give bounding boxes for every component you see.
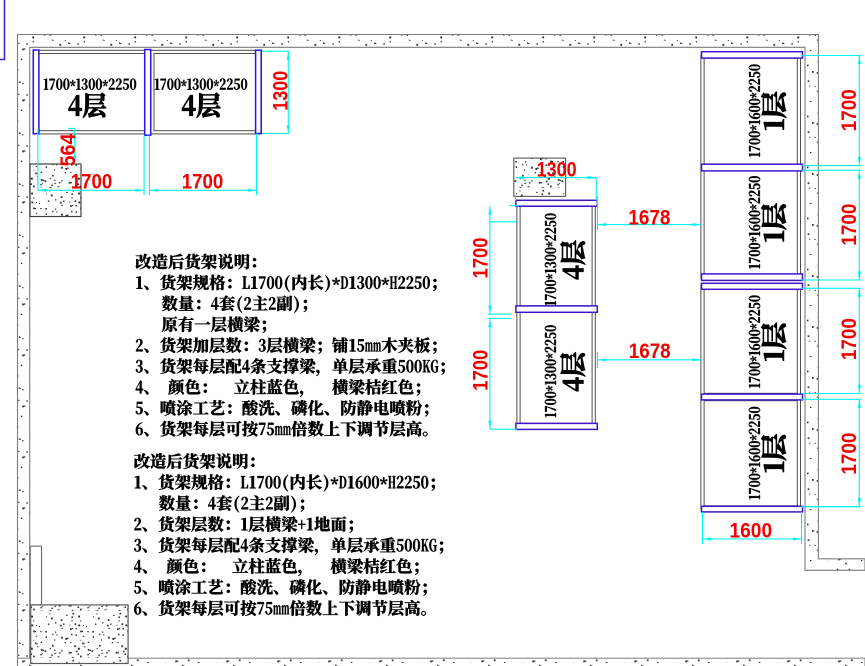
svg-text:1700: 1700: [838, 433, 861, 475]
svg-text:1700: 1700: [182, 171, 224, 194]
svg-text:564: 564: [57, 133, 80, 166]
svg-text:1700: 1700: [838, 89, 861, 131]
svg-text:1300: 1300: [537, 159, 577, 182]
svg-text:1600: 1600: [730, 520, 773, 543]
svg-text:1700: 1700: [838, 204, 861, 246]
svg-text:1700: 1700: [470, 350, 493, 391]
svg-text:1700: 1700: [71, 171, 113, 194]
svg-text:1700: 1700: [470, 238, 493, 279]
svg-text:1700: 1700: [838, 318, 861, 360]
svg-text:1300: 1300: [269, 71, 292, 111]
svg-text:1678: 1678: [629, 340, 671, 363]
svg-text:1678: 1678: [628, 207, 670, 230]
